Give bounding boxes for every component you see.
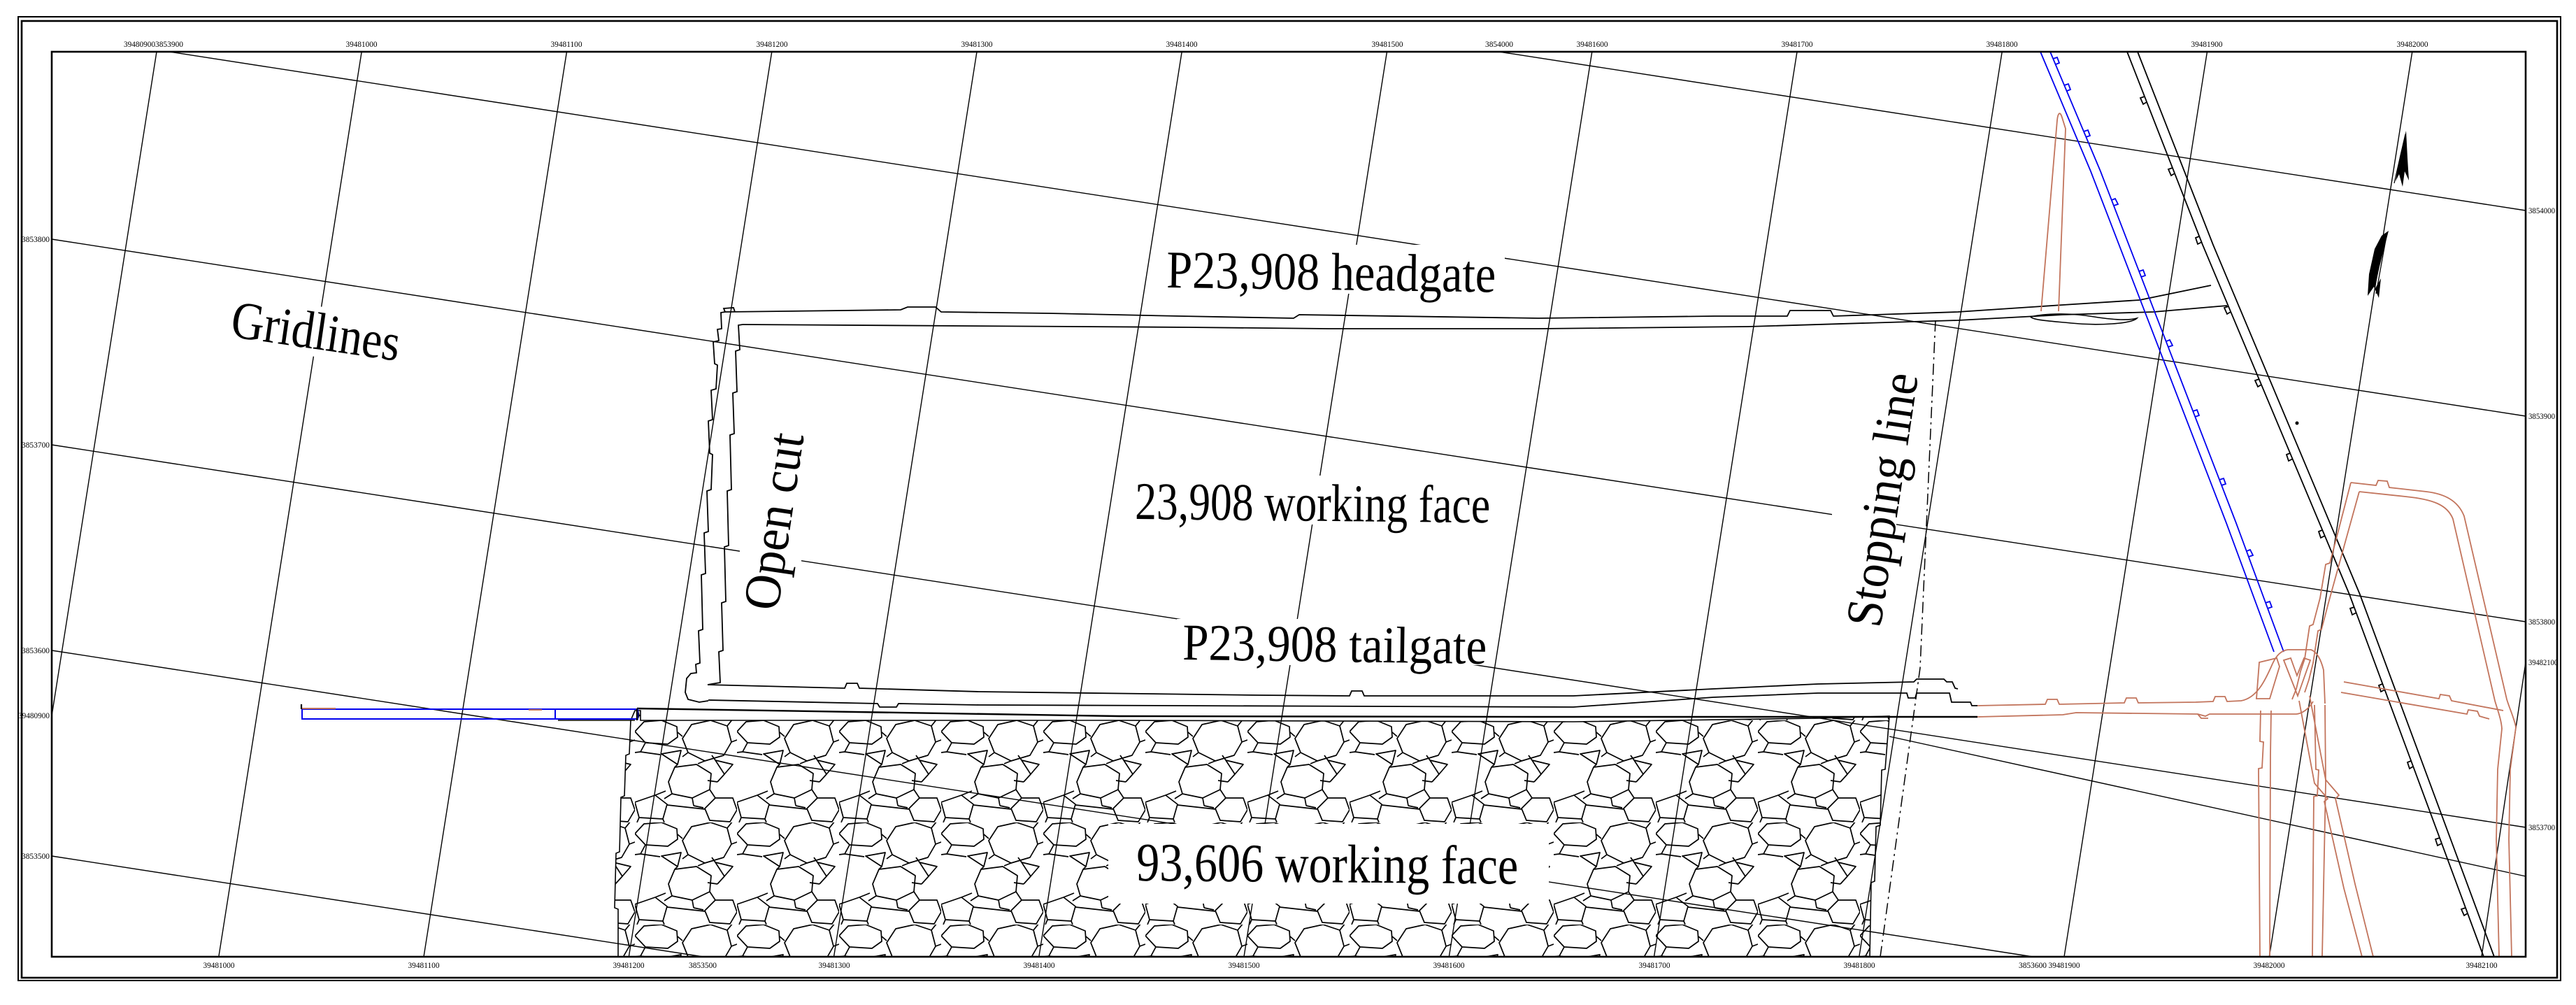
svg-text:39481900: 39481900 <box>2049 960 2080 970</box>
svg-text:39481000: 39481000 <box>346 39 378 49</box>
svg-text:39480900: 39480900 <box>124 39 155 49</box>
svg-text:39482100: 39482100 <box>2466 960 2498 970</box>
svg-text:39481100: 39481100 <box>551 39 582 49</box>
svg-text:3853700: 3853700 <box>22 440 50 450</box>
svg-text:39480900: 39480900 <box>18 711 50 720</box>
svg-text:3853800: 3853800 <box>22 234 50 244</box>
svg-text:39481500: 39481500 <box>1229 960 1260 970</box>
svg-text:23,908 working face: 23,908 working face <box>1135 472 1491 534</box>
svg-text:39482000: 39482000 <box>2397 39 2428 49</box>
svg-text:39481300: 39481300 <box>961 39 993 49</box>
svg-text:39481600: 39481600 <box>1433 960 1465 970</box>
svg-text:3853900: 3853900 <box>155 39 183 49</box>
svg-text:39481300: 39481300 <box>819 960 850 970</box>
svg-text:39481400: 39481400 <box>1024 960 1055 970</box>
svg-text:3853500: 3853500 <box>689 960 717 970</box>
svg-text:39481700: 39481700 <box>1639 960 1670 970</box>
svg-text:93,606 working face: 93,606 working face <box>1136 832 1519 896</box>
svg-text:3853800: 3853800 <box>2528 617 2555 627</box>
svg-text:39481200: 39481200 <box>757 39 788 49</box>
svg-text:3854000: 3854000 <box>2528 206 2555 215</box>
svg-text:3853700: 3853700 <box>2528 822 2555 832</box>
svg-text:3853500: 3853500 <box>22 851 50 861</box>
svg-text:P23,908 tailgate: P23,908 tailgate <box>1182 614 1487 676</box>
svg-text:39481600: 39481600 <box>1577 39 1608 49</box>
svg-text:39481800: 39481800 <box>1987 39 2018 49</box>
svg-text:39481900: 39481900 <box>2191 39 2223 49</box>
svg-text:3853600: 3853600 <box>2019 960 2047 970</box>
svg-text:3853900: 3853900 <box>2528 411 2555 421</box>
svg-text:39481700: 39481700 <box>1782 39 1813 49</box>
svg-text:39482000: 39482000 <box>2254 960 2285 970</box>
svg-text:39481200: 39481200 <box>613 960 645 970</box>
svg-text:39481400: 39481400 <box>1166 39 1198 49</box>
svg-text:39481800: 39481800 <box>1844 960 1875 970</box>
svg-text:39481100: 39481100 <box>408 960 440 970</box>
svg-text:P23,908 headgate: P23,908 headgate <box>1166 241 1496 304</box>
svg-text:39481000: 39481000 <box>203 960 235 970</box>
svg-text:39482100: 39482100 <box>2528 657 2558 667</box>
svg-text:3853600: 3853600 <box>22 646 50 655</box>
svg-text:3854000: 3854000 <box>1485 39 1513 49</box>
svg-text:39481500: 39481500 <box>1372 39 1403 49</box>
